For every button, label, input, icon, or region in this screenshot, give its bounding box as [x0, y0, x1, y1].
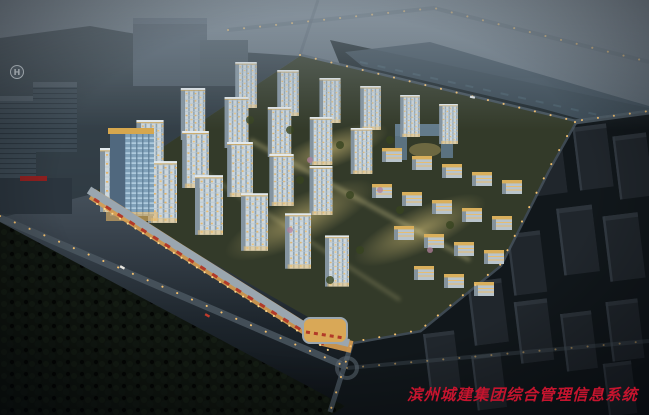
- system-title-watermark: 滨州城建集团综合管理信息系统: [407, 386, 640, 404]
- scene-canvas: H: [0, 0, 649, 415]
- architectural-rendering: H: [0, 0, 649, 415]
- atmosphere: [0, 0, 649, 415]
